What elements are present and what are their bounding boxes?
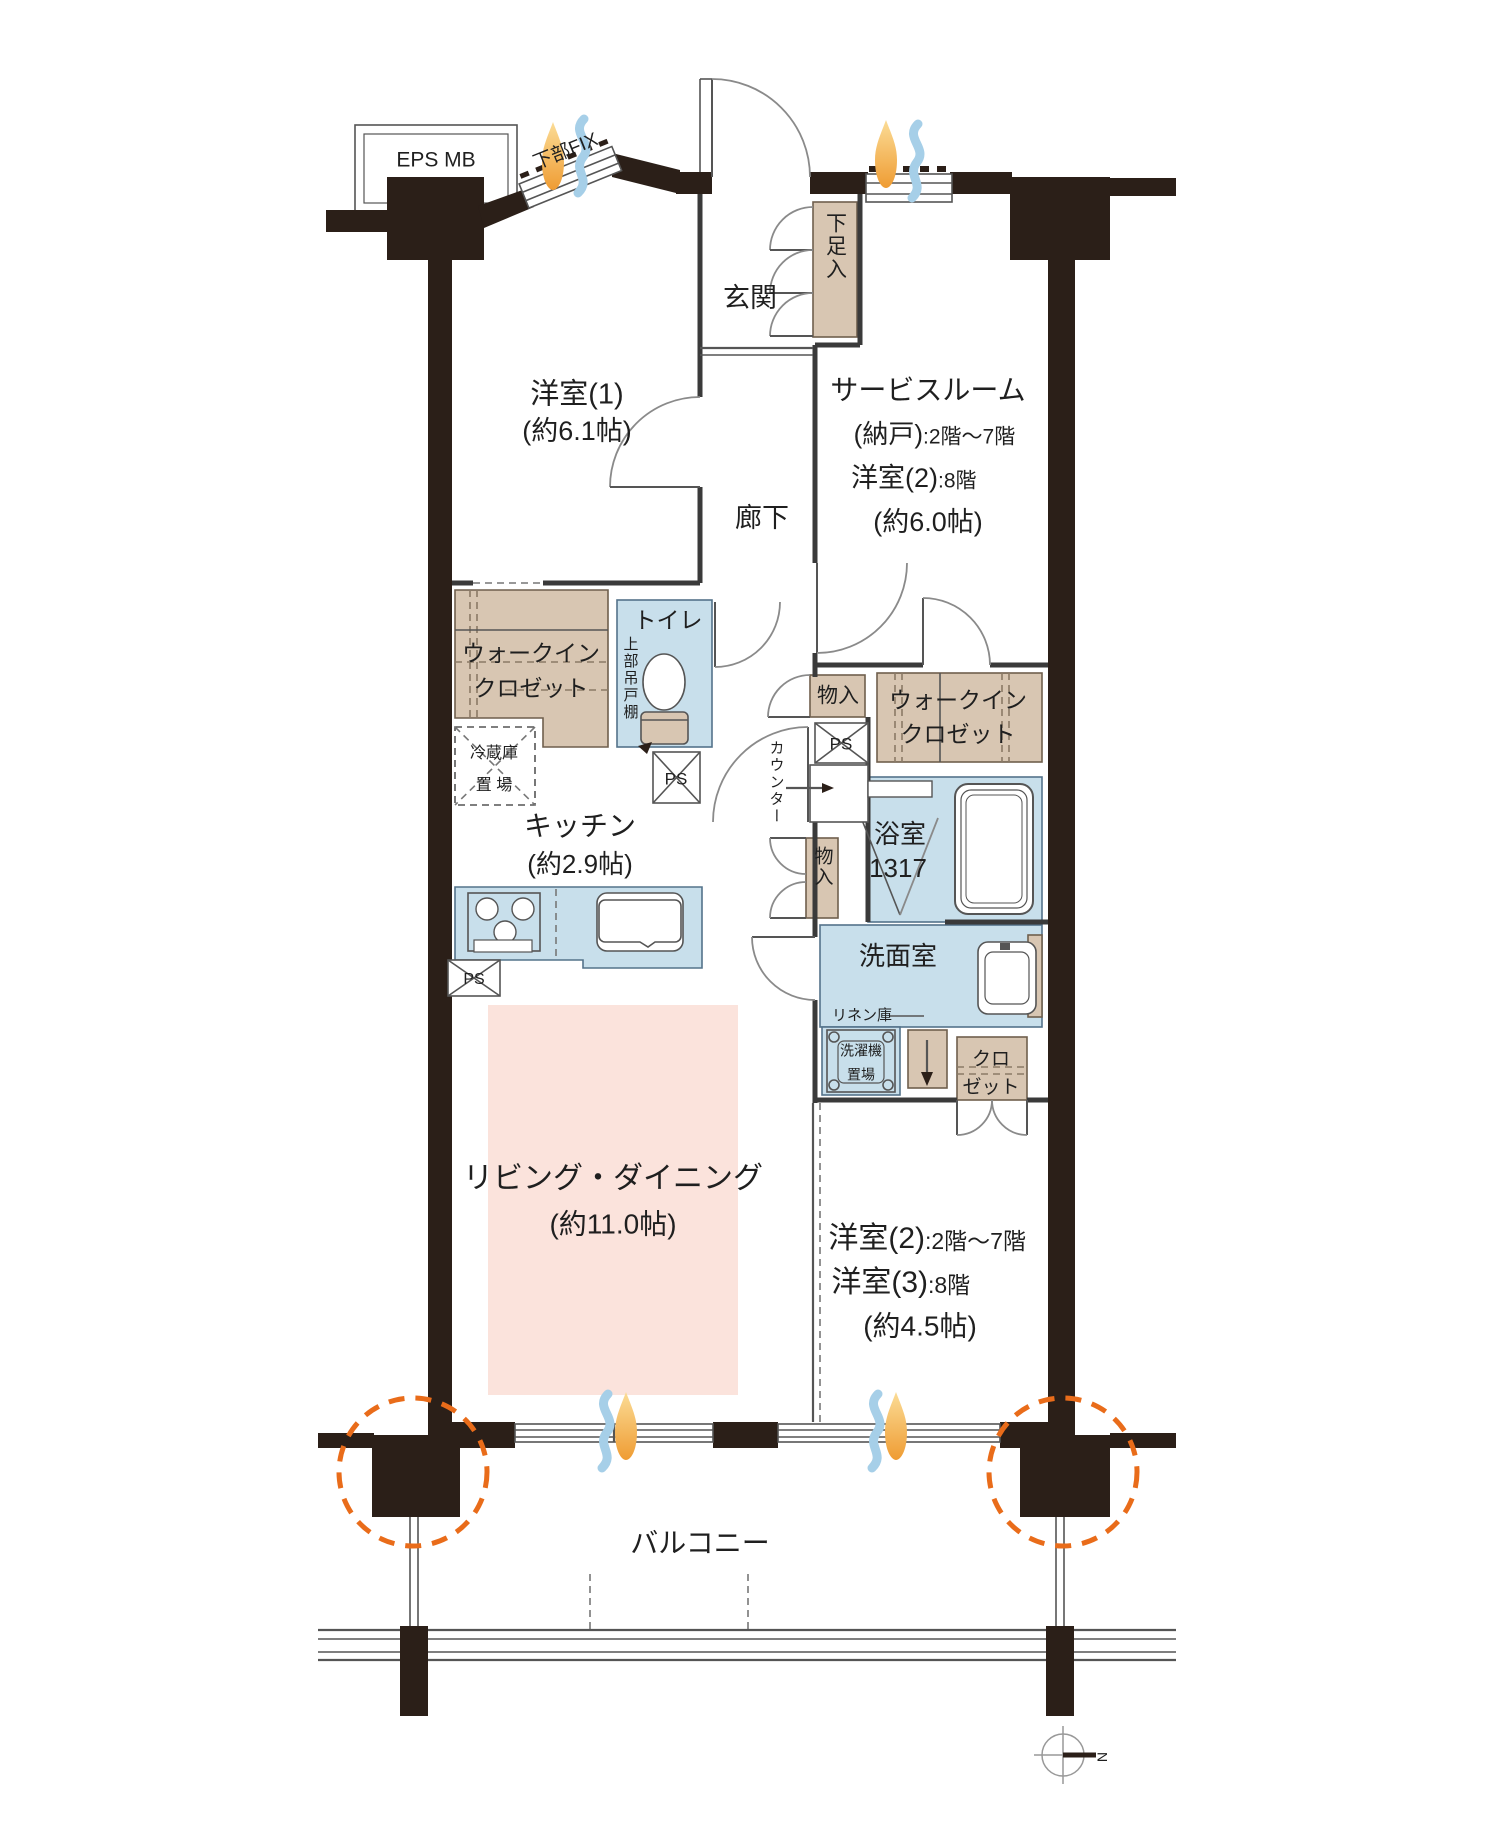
pillar-bottom-left [372, 1435, 460, 1517]
storage-upper-label: 物入 [817, 685, 859, 708]
wic-left-label-1: ウォークイン [462, 640, 600, 666]
kitchen-sink [597, 893, 683, 951]
counter-label: カウンター [768, 740, 785, 825]
pillar-bottom-right [1020, 1435, 1110, 1517]
service-room-room8: 洋室(2) [851, 463, 938, 493]
western-room-2-3-size: (約4.5帖) [863, 1310, 977, 1341]
fridge-label-2: 置 場 [476, 776, 512, 794]
shoe-cabinet-doors [770, 207, 813, 336]
wic-left-label-2: クロゼット [474, 675, 589, 701]
service-room-storage-floors: :2階〜7階 [923, 426, 1015, 449]
closet-label-2: ゼット [962, 1076, 1019, 1098]
washer-area [822, 1027, 900, 1095]
service-room-storage: (納戸) [854, 419, 923, 449]
ps-kitchen-label: PS [463, 971, 484, 988]
ps-toilet-label: PS [665, 769, 688, 788]
western-room-3-label: 洋室(3) [831, 1266, 928, 1299]
entrance-door [712, 79, 810, 177]
washer-label-1: 洗濯機 [840, 1043, 882, 1059]
compass [1034, 1726, 1096, 1784]
service-room-size: (約6.0帖) [873, 507, 983, 537]
closet-label-1: クロ [972, 1048, 1010, 1070]
kitchen-label: キッチン [524, 810, 636, 841]
fridge-label-1: 冷蔵庫 [470, 744, 518, 762]
western-room-2-floors: :2階〜7階 [925, 1228, 1026, 1254]
washroom-door [752, 937, 815, 1000]
western-room-1-size: (約6.1帖) [522, 416, 632, 446]
compass-north-label: N [1094, 1752, 1110, 1762]
living-dining-label: リビング・ダイニング [463, 1162, 763, 1195]
counter-nook [810, 765, 868, 822]
bathtub [955, 784, 1033, 914]
kitchen-size: (約2.9帖) [527, 849, 632, 879]
living-dining-floor [488, 1005, 738, 1395]
bathroom-size: 1317 [869, 853, 927, 883]
balcony-railing [318, 1626, 1176, 1716]
hall-door [713, 727, 808, 822]
wall-left [428, 255, 452, 1448]
entrance-label: 玄関 [723, 283, 777, 313]
toilet-label: トイレ [634, 607, 703, 633]
western-room-2-label: 洋室(2) [828, 1222, 925, 1255]
toilet-door [715, 602, 780, 667]
storage-lower-doors [770, 838, 806, 918]
service-room-room8-floors: :8階 [938, 470, 977, 493]
exterior-walls [318, 125, 1176, 1517]
airflow-icon [912, 124, 920, 198]
shoe-cabinet-label: 下足入 [824, 212, 848, 281]
washbasin [978, 942, 1036, 1014]
flame-icon [875, 120, 897, 188]
storage-upper-door [768, 675, 810, 717]
living-dining-size: (約11.0帖) [549, 1208, 676, 1239]
walk-in-closet-right-door [923, 598, 990, 665]
service-room-label: サービスルーム [830, 374, 1025, 405]
washer-label-2: 置場 [847, 1067, 875, 1083]
wic-right-label-1: ウォークイン [889, 687, 1027, 713]
airflow-icon [872, 1394, 880, 1468]
hallway-label: 廊下 [735, 503, 789, 533]
washroom-label: 洗面室 [859, 941, 937, 971]
western-room-3-floors: :8階 [928, 1272, 970, 1298]
western-room-1-label: 洋室(1) [530, 378, 623, 411]
bath-counter [868, 781, 932, 797]
storage-lower-label: 物入 [812, 846, 834, 888]
toilet-shelf-label: 上部吊戸棚 [622, 636, 639, 721]
walk-in-closet-left-box [455, 590, 608, 747]
ps-hall-label: PS [830, 734, 853, 753]
bathroom-label: 浴室 [874, 819, 926, 849]
wall-right [1048, 194, 1075, 1448]
closet-doors [957, 1100, 1027, 1135]
wic-right-label-2: クロゼット [901, 721, 1016, 747]
pillar-top-left [387, 177, 484, 260]
airflow-icon [602, 1394, 610, 1468]
linen-label: リネン庫 [832, 1007, 892, 1024]
flame-icon [615, 1392, 637, 1460]
flame-icon [885, 1392, 907, 1460]
service-room-door [817, 563, 907, 653]
balcony-label: バルコニー [630, 1527, 769, 1558]
floor-plan: EPS MB 下部FIX 玄関 下足入 洋室(1) (約6.1帖) サービスルー… [0, 0, 1500, 1844]
eps-mb-label: EPS MB [396, 149, 475, 172]
